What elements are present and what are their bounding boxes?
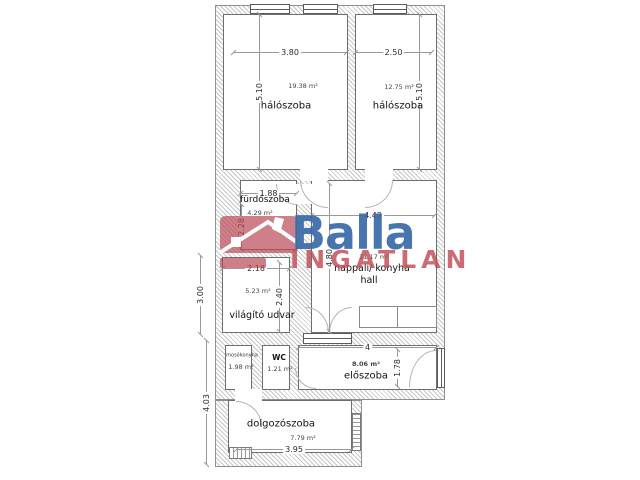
dimension-label: 3.95 — [283, 445, 305, 453]
dimension-line: 3.80 — [233, 52, 347, 53]
room-bedroom-left — [223, 14, 348, 170]
room-label-wc: WC — [272, 354, 286, 362]
kitchen-counter — [359, 306, 437, 328]
dimension-label: 1.78 — [393, 357, 401, 379]
room-label-living-hall: hall — [360, 276, 377, 286]
area-label-light-court: 5.23 m² — [245, 287, 270, 295]
dimension-line: 2.50 — [355, 52, 432, 53]
room-label-study: dolgozószoba — [247, 419, 315, 430]
dimension-line: 4 — [298, 347, 437, 348]
area-label-wc: 1.21 m² — [267, 365, 292, 373]
dimension-line: 5.10 — [259, 14, 260, 170]
area-label-bedroom-right: 12.75 m² — [384, 83, 414, 91]
door-opening — [235, 389, 262, 401]
dimension-label: 4.03 — [202, 392, 210, 414]
room-bedroom-right — [355, 14, 437, 170]
room-label-bedroom-left: hálószoba — [261, 101, 311, 112]
dimension-label: 3.00 — [196, 284, 204, 306]
dimension-label: 2.40 — [275, 286, 283, 308]
room-label-hallway: előszoba — [344, 371, 388, 382]
dimension-label: 4 — [363, 343, 372, 351]
dimension-line: 2.40 — [279, 262, 280, 332]
room-label-light-court: világító udvar — [229, 311, 294, 321]
dimension-line: 1.78 — [397, 349, 398, 387]
dimension-line: 1.88 — [240, 193, 297, 194]
area-label-study: 7.79 m² — [290, 434, 315, 442]
room-label-laundry: mosókonyha — [226, 353, 258, 359]
area-label-bedroom-left: 19.38 m² — [288, 82, 318, 90]
subbrand-text: INGATLAN — [290, 247, 471, 272]
radiator-symbol — [352, 413, 361, 451]
dimension-label: 3.80 — [279, 48, 301, 56]
dimension-line: 4.03 — [206, 340, 207, 465]
room-label-bedroom-right: hálószoba — [373, 101, 423, 112]
dimension-line: 3.95 — [236, 449, 352, 450]
entry-door-symbol — [437, 348, 445, 388]
area-label-hallway: 8.06 m² — [352, 360, 380, 368]
window-symbol — [303, 333, 352, 344]
balla-ingatlan-watermark: Balla INGATLAN — [220, 214, 452, 272]
dimension-line: 5.10 — [419, 14, 420, 170]
area-label-laundry: 1.98 m² — [228, 363, 253, 371]
dimension-line: 3.00 — [200, 255, 201, 335]
floor-plan: 3.80 2.50 5.10 5.10 1.88 2.28 4.42 4.80 … — [0, 0, 640, 480]
window-symbol — [373, 4, 407, 14]
dimension-label: 2.50 — [383, 48, 405, 56]
house-roof-icon — [220, 216, 300, 268]
room-label-bathroom: fürdőszoba — [240, 196, 290, 206]
kitchen-counter-step — [397, 306, 398, 328]
window-symbol — [303, 4, 338, 14]
